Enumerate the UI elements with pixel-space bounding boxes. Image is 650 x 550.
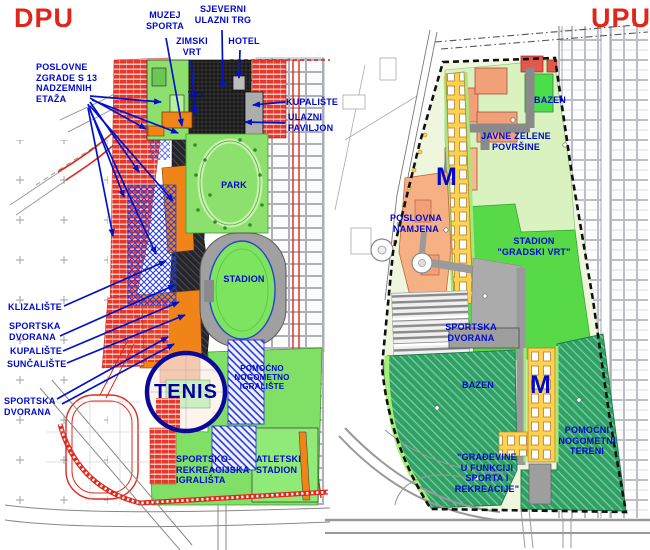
label-stadion-gradski-vrt: STADION "GRADSKI VRT" [492, 236, 576, 257]
label-javne-zelene: JAVNE ZELENE POVRŠINE [474, 131, 558, 152]
label-stadion: STADION [218, 274, 270, 285]
label-zimski-vrt: ZIMSKI VRT [172, 36, 212, 57]
label-atletski-stadion: ATLETSKI STADION [256, 454, 301, 475]
label-bazen-top: BAZEN [530, 95, 570, 106]
label-muzej-sporta: MUZEJ SPORTA [141, 10, 189, 31]
label-pomocno-nogometno: POMOĆNO NOGOMETNO IGRALIŠTE [228, 364, 296, 391]
label-poslovna-namjena: POSLOVNA NAMJENA [386, 213, 446, 234]
hotel-building [233, 76, 245, 90]
label-sjeverni-ulazni-trg: SJEVERNI ULAZNI TRG [192, 4, 254, 25]
title-dpu: DPU [14, 5, 74, 32]
label-park: PARK [212, 180, 256, 191]
label-sportska-dvorana-1: SPORTSKA DVORANA [9, 321, 61, 342]
label-bazen-bottom: BAZEN [458, 380, 498, 391]
label-sportska-dvorana-upu: SPORTSKA DVORANA [440, 322, 502, 343]
stadion-area [200, 233, 286, 347]
label-sportsko-rekreacijska: SPORTSKO- REKREACIJSKA IGRALIŠTA [176, 454, 249, 486]
label-gradevine: "GRAĐEVINE U FUNKCIJI SPORTA I REKREACIJ… [444, 452, 530, 494]
label-m-top: M [436, 165, 457, 190]
planning-maps-comparison: DPU UPU MUZEJ SPORTA SJEVERNI ULAZNI TRG… [0, 0, 650, 550]
kupaliste-building [245, 92, 263, 136]
label-poslovne-zgrade: POSLOVNE ZGRADE S 13 NADZEMNIH ETAŽA [36, 62, 97, 104]
parking-rows-south [150, 428, 176, 484]
maps-drawing [0, 0, 650, 550]
label-tenis: TENIS [148, 382, 224, 402]
label-sportska-dvorana-2: SPORTSKA DVORANA [4, 396, 56, 417]
label-kupaliste-desno: KUPALIŠTE [286, 97, 338, 108]
label-vrt: VRT [183, 90, 209, 99]
mixed-use-strip-bottom [528, 348, 555, 462]
label-hotel: HOTEL [224, 36, 264, 47]
north-entrance-square [189, 60, 251, 140]
label-m-bottom: M [530, 373, 551, 398]
label-suncaliste: SUNČALIŠTE [7, 359, 67, 370]
title-upu: UPU [591, 5, 650, 32]
muzej-sporta-building [162, 112, 192, 128]
label-ulazni-paviljon: ULAZNI PAVILJON [288, 112, 333, 133]
label-pomocni-nogometni: POMOĆNI NOGOMETNI TERENI [552, 425, 622, 457]
label-klizaliste: KLIZALIŠTE [8, 302, 62, 313]
label-kupaliste-lijevo: KUPALIŠTE [10, 346, 62, 357]
